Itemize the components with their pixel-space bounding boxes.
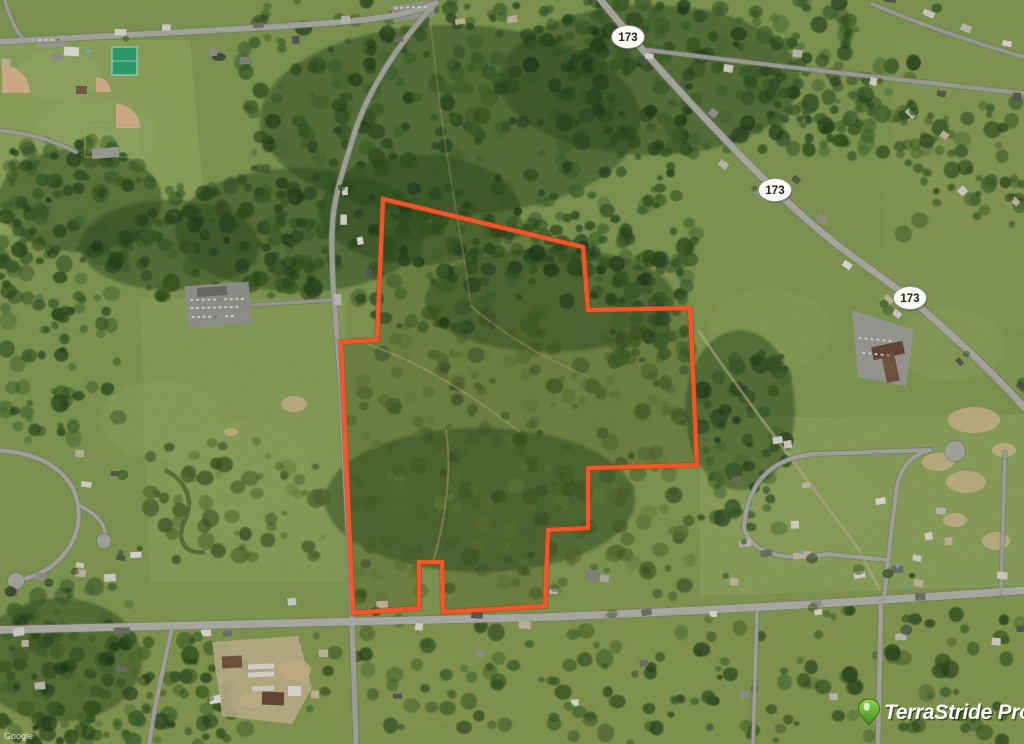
logo-text: TerraStride Pro [884, 701, 1024, 724]
provider-attribution: Google [4, 731, 33, 741]
route-shield-label: 173 [765, 185, 784, 197]
satellite-map-view[interactable]: 173 173 173 TerraStride Pro TerraStride … [0, 0, 1024, 744]
grain-overlay [0, 0, 1024, 744]
route-shield-label: 173 [900, 293, 919, 305]
satellite-map[interactable]: 173 173 173 TerraStride Pro TerraStride … [0, 0, 1024, 744]
route-shield-label: 173 [618, 32, 637, 44]
terrastride-watermark: TerraStride Pro TerraStride Pro [859, 699, 1024, 726]
